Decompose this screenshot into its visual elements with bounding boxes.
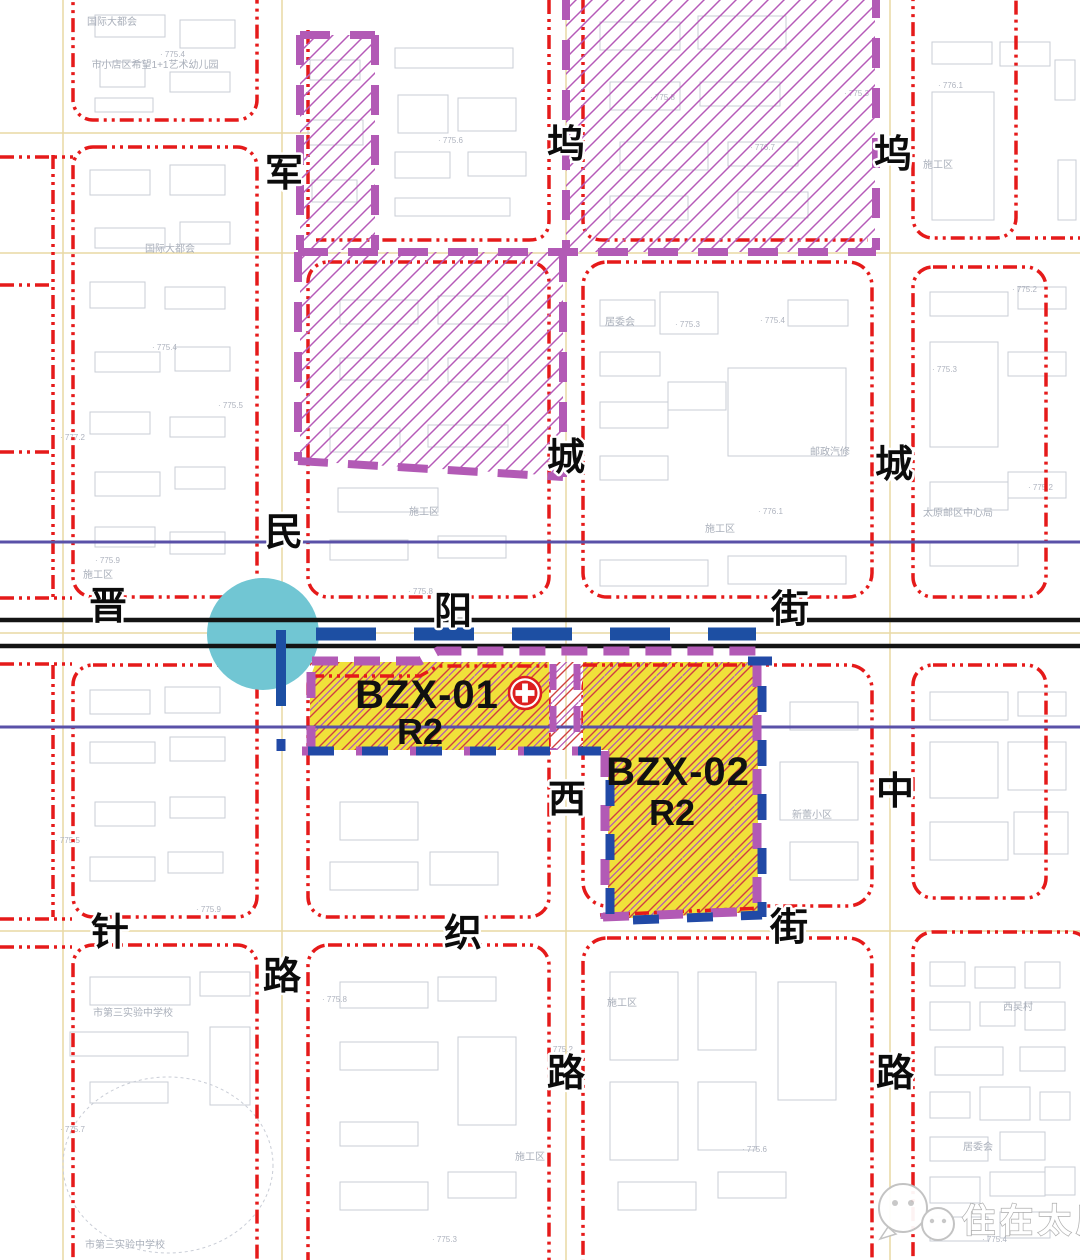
- background-map-label: 市第三实验中学校: [85, 1238, 165, 1251]
- building-footprint: [932, 92, 994, 220]
- building-footprint: [395, 48, 513, 68]
- building-footprint: [175, 347, 230, 371]
- building-footprint: [448, 1172, 516, 1198]
- building-footprint: [1000, 1132, 1045, 1160]
- street-label-wucheng-west-2: 城: [547, 437, 585, 479]
- building-footprint: [1025, 962, 1060, 988]
- street-label-wucheng-west-4: 路: [547, 1053, 586, 1095]
- building-footprint: [935, 1047, 1003, 1075]
- building-footprint: [932, 42, 992, 64]
- building-footprint: [788, 300, 848, 326]
- building-footprint: [728, 556, 846, 584]
- wechat-bubbles-icon: [879, 1184, 954, 1240]
- building-footprint: [95, 802, 155, 826]
- building-footprint: [340, 1182, 428, 1210]
- zone-bzx-02-use: R2: [649, 792, 695, 833]
- building-footprint: [170, 165, 225, 195]
- elevation-mark: · 775.2: [1012, 285, 1037, 294]
- building-footprint: [610, 972, 678, 1060]
- building-footprint: [165, 687, 220, 713]
- building-footprint: [398, 95, 448, 133]
- background-map-label: 居委会: [605, 315, 635, 328]
- building-footprint: [90, 690, 150, 714]
- building-footprint: [438, 977, 496, 1001]
- zone-bzx-01-use: R2: [397, 711, 443, 752]
- street-label-junmin-3: 路: [263, 956, 302, 998]
- building-footprint: [170, 72, 230, 92]
- building-footprint: [1000, 42, 1050, 66]
- background-map-label: 市小店区希望1+1艺术幼儿园: [92, 58, 219, 71]
- building-footprint: [95, 352, 160, 372]
- street-label-junmin-2: 民: [265, 512, 303, 554]
- building-footprint: [170, 417, 225, 437]
- background-map-label: 市第三实验中学校: [93, 1006, 173, 1019]
- building-footprint: [930, 1177, 980, 1203]
- street-label-jinyang-3: 街: [770, 589, 809, 631]
- elevation-mark: · 775.3: [932, 365, 957, 374]
- building-footprint: [340, 802, 418, 840]
- building-footprint: [165, 287, 225, 309]
- elevation-mark: · 775.5: [218, 401, 243, 410]
- street-label-zhenzhi-1: 针: [91, 912, 129, 954]
- zone-bzx-02-id: BZX-02: [606, 750, 750, 794]
- building-footprint: [1018, 692, 1066, 716]
- street-label-zhenzhi-2: 织: [444, 913, 482, 955]
- elevation-mark: · 775.8: [408, 587, 433, 596]
- planning-map-svg: 国际大都会市小店区希望1+1艺术幼儿园国际大都会施工区施工区居委会邮政汽修施工区…: [0, 0, 1080, 1260]
- building-footprint: [168, 852, 223, 873]
- building-footprint: [210, 1027, 250, 1105]
- elevation-mark: · 775.4: [760, 316, 785, 325]
- building-footprint: [1040, 1092, 1070, 1120]
- building-footprint: [430, 852, 498, 885]
- street-label-wucheng-west-3: 西: [548, 779, 586, 821]
- street-label-junmin-1: 军: [265, 153, 303, 195]
- building-footprint: [600, 402, 668, 428]
- building-footprint: [1055, 60, 1075, 100]
- planning-map-page: 国际大都会市小店区希望1+1艺术幼儿园国际大都会施工区施工区居委会邮政汽修施工区…: [0, 0, 1080, 1260]
- building-footprint: [1045, 1167, 1075, 1195]
- building-footprint: [90, 282, 145, 308]
- building-footprint: [395, 198, 510, 216]
- background-map-label: 施工区: [515, 1150, 545, 1163]
- building-footprint: [930, 482, 1008, 510]
- building-footprint: [1008, 742, 1066, 790]
- background-map-label: 施工区: [705, 522, 735, 535]
- street-label-wucheng-west-1: 坞: [547, 124, 585, 166]
- building-footprint: [610, 1082, 678, 1160]
- building-footprint: [90, 412, 150, 434]
- elevation-mark: · 775.8: [322, 995, 347, 1004]
- building-footprint: [90, 857, 155, 881]
- building-footprint: [930, 542, 1018, 566]
- street-label-wucheng-middle-1: 坞: [874, 134, 912, 176]
- building-footprint: [728, 368, 846, 456]
- building-footprint: [975, 967, 1015, 988]
- background-map-label: 太原邮区中心局: [923, 506, 993, 519]
- building-footprint: [458, 98, 516, 131]
- building-footprint: [340, 1122, 418, 1146]
- building-footprint: [778, 982, 836, 1100]
- building-footprint: [930, 342, 998, 447]
- building-footprint: [468, 152, 526, 176]
- background-map-label: 邮政汽修: [810, 445, 850, 458]
- building-footprint: [340, 982, 428, 1008]
- background-map-label: 国际大都会: [145, 242, 195, 255]
- background-map-label: 国际大都会: [87, 15, 137, 28]
- elevation-mark: · 775.4: [160, 50, 185, 59]
- building-footprint: [600, 560, 708, 586]
- building-footprint: [980, 1087, 1030, 1120]
- building-footprint: [600, 456, 668, 480]
- building-footprint: [930, 292, 1008, 316]
- building-footprint: [618, 1182, 696, 1210]
- building-footprint: [1014, 812, 1068, 854]
- elevation-mark: · 775.3: [675, 320, 700, 329]
- building-footprint: [790, 842, 858, 880]
- elevation-mark: · 775.4: [152, 343, 177, 352]
- street-label-jinyang-1: 晋: [89, 586, 127, 628]
- watermark-text: 住在太原: [962, 1202, 1080, 1239]
- elevation-mark: · 775.7: [60, 1125, 85, 1134]
- building-footprint: [170, 797, 225, 818]
- building-footprint: [180, 20, 235, 48]
- elevation-mark: · 775.9: [95, 556, 120, 565]
- building-footprint: [90, 1082, 168, 1103]
- building-footprint: [95, 98, 153, 112]
- building-footprint: [170, 737, 225, 761]
- elevation-mark: · 776.1: [758, 507, 783, 516]
- elevation-mark: · 776.1: [938, 81, 963, 90]
- elevation-mark: · 775.3: [432, 1235, 457, 1244]
- metro-station-circle: [207, 578, 319, 690]
- hospital-cross-icon: [509, 677, 541, 709]
- building-footprint: [930, 742, 998, 798]
- building-footprint: [175, 467, 225, 489]
- street-label-jinyang-2: 阳: [434, 591, 472, 633]
- building-footprint: [698, 1082, 756, 1150]
- background-map-label: 西吴村: [1003, 1000, 1033, 1013]
- building-footprint: [340, 1042, 438, 1070]
- building-footprint: [698, 972, 756, 1050]
- building-footprint: [1020, 1047, 1065, 1071]
- elevation-mark: · 775.6: [742, 1145, 767, 1154]
- building-footprint: [180, 222, 230, 244]
- street-label-wucheng-middle-2: 城: [875, 444, 913, 486]
- building-footprint: [395, 152, 450, 178]
- building-footprint: [930, 962, 965, 986]
- background-map-label: 施工区: [83, 568, 113, 581]
- building-footprint: [95, 527, 155, 547]
- building-footprint: [330, 862, 418, 890]
- street-label-wucheng-middle-4: 路: [876, 1053, 915, 1095]
- planning-area-hatch: [300, 0, 875, 476]
- building-footprint: [600, 352, 660, 376]
- building-footprint: [990, 1172, 1045, 1196]
- building-footprint: [930, 1002, 970, 1030]
- background-map-label: 新蕾小区: [792, 808, 832, 821]
- building-footprint: [930, 692, 1008, 720]
- background-map-label: 居委会: [963, 1140, 993, 1153]
- building-footprint: [90, 977, 190, 1005]
- background-map-label: 施工区: [607, 996, 637, 1009]
- metro-station-bar: [276, 630, 286, 706]
- building-footprint: [200, 972, 250, 996]
- building-footprint: [668, 382, 726, 410]
- building-footprint: [1008, 352, 1066, 376]
- elevation-mark: · 775.6: [438, 136, 463, 145]
- building-footprint: [90, 742, 155, 763]
- street-label-zhenzhi-3: 街: [769, 907, 808, 949]
- building-footprint: [930, 1092, 970, 1118]
- elevation-mark: · 775.5: [55, 836, 80, 845]
- street-label-wucheng-middle-3: 中: [876, 771, 914, 813]
- building-footprint: [90, 170, 150, 195]
- building-footprint: [458, 1037, 516, 1125]
- building-footprint: [1058, 160, 1076, 220]
- background-map-label: 施工区: [409, 505, 439, 518]
- building-footprint: [438, 536, 506, 558]
- background-map-label: 施工区: [923, 158, 953, 171]
- elevation-mark: · 775.9: [196, 905, 221, 914]
- elevation-mark: · 775.2: [1028, 483, 1053, 492]
- building-footprint: [718, 1172, 786, 1198]
- building-footprint: [930, 822, 1008, 860]
- building-footprint: [95, 472, 160, 496]
- building-footprint: [70, 1032, 188, 1056]
